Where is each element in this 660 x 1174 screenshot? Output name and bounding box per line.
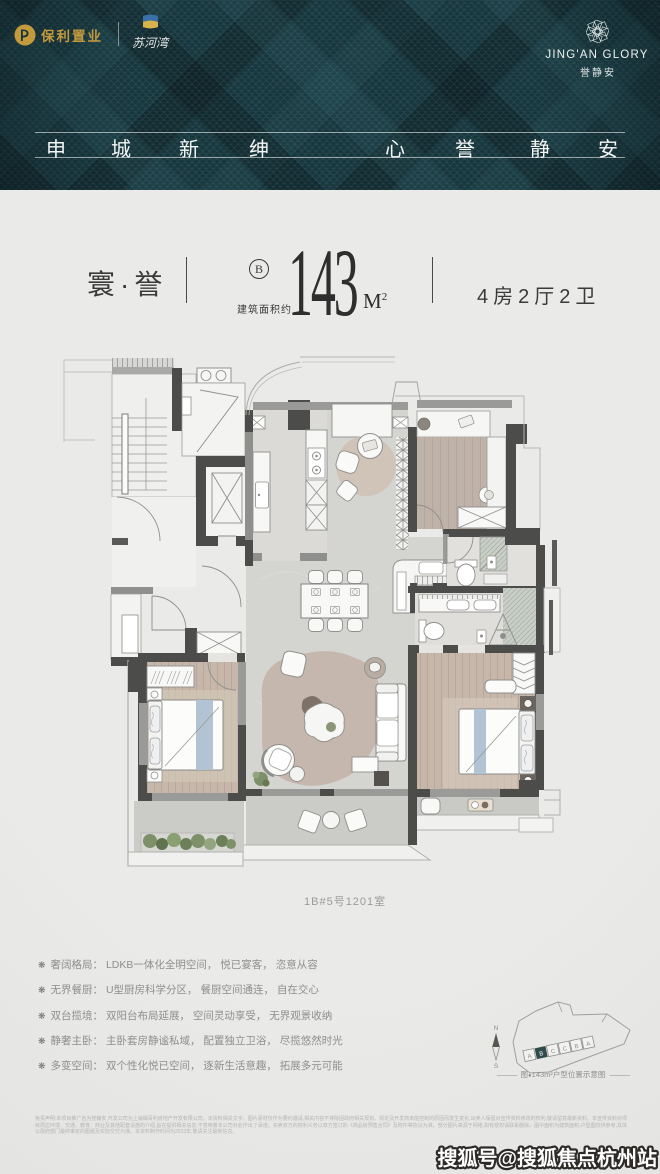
svg-text:搜狐号@搜狐焦点杭州站: 搜狐号@搜狐焦点杭州站: [437, 1146, 657, 1170]
svg-text:N: N: [494, 1025, 499, 1032]
